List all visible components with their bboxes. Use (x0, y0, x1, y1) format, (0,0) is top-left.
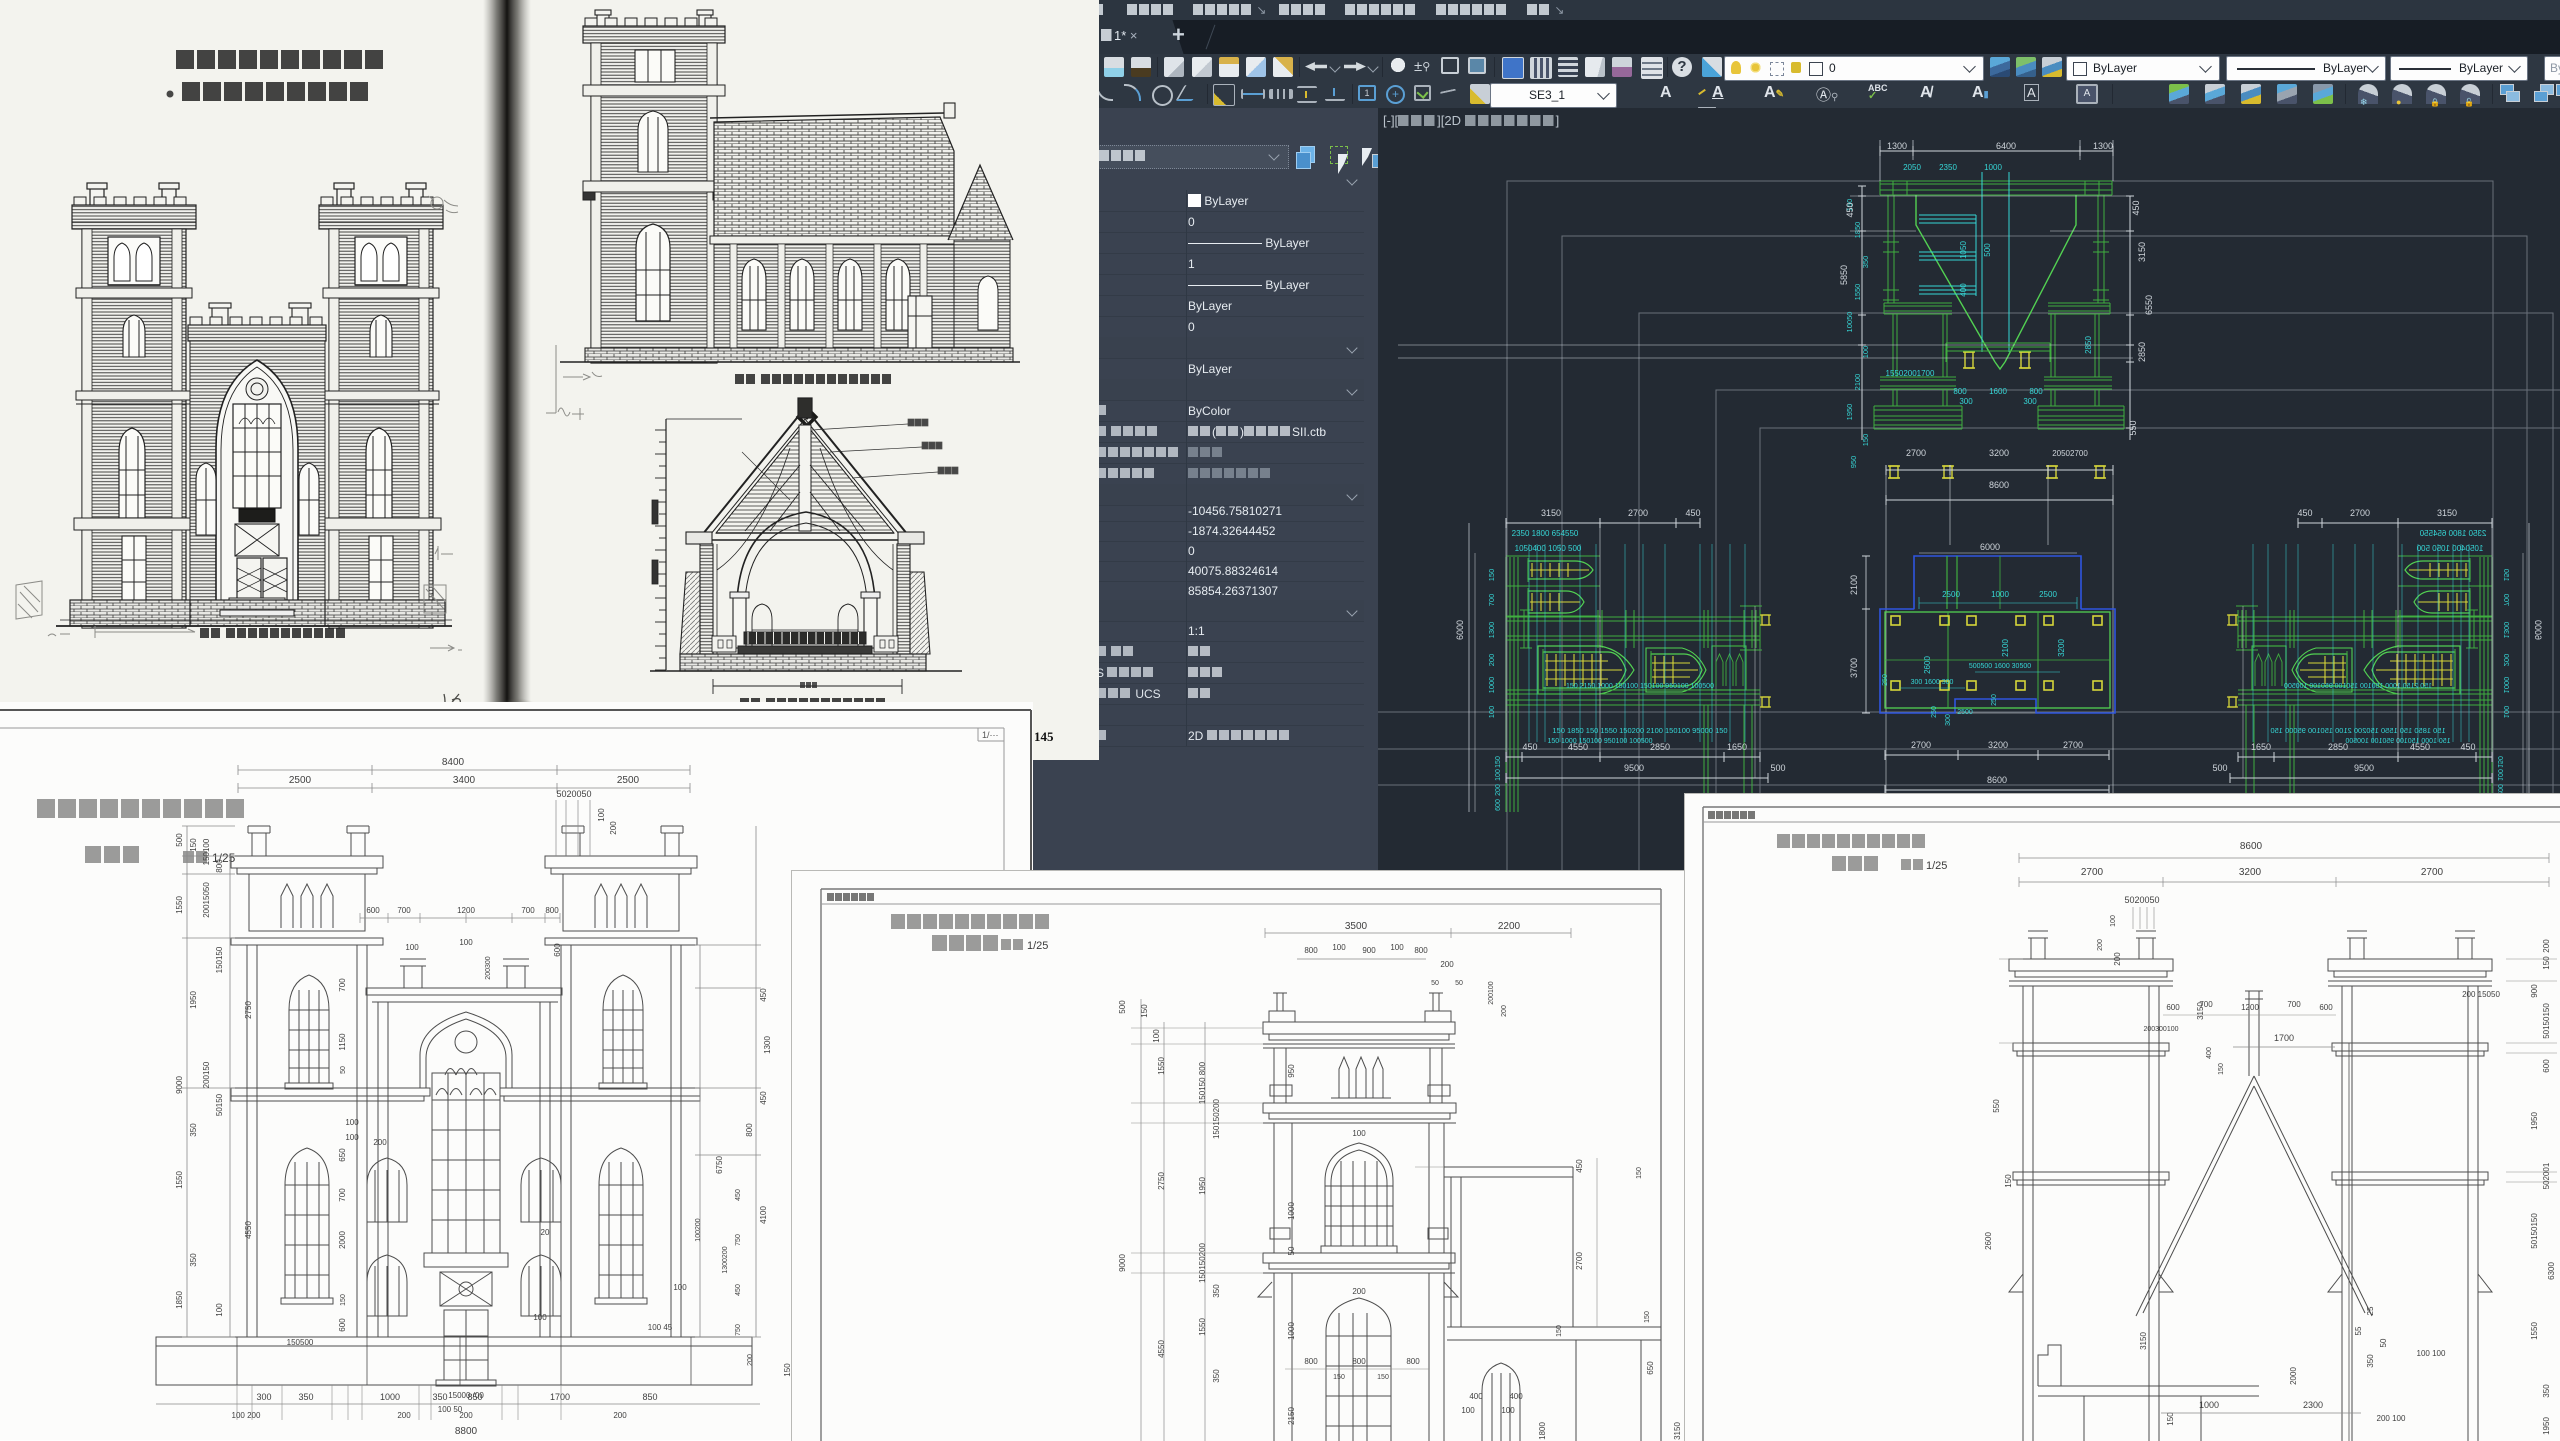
svg-text:150: 150 (2542, 956, 2551, 970)
svg-text:1850: 1850 (175, 1291, 184, 1309)
svg-text:3150: 3150 (1673, 1422, 1682, 1440)
svg-text:200100: 200100 (1488, 981, 1495, 1004)
svg-text:2000: 2000 (2289, 1367, 2298, 1385)
svg-text:400: 400 (2206, 1047, 2213, 1059)
svg-text:150 1850 150 1550 150200: 150 1850 150 1550 150200 2100 150100 950… (1552, 726, 1727, 735)
svg-text:200: 200 (2502, 654, 2511, 667)
svg-text:200300: 200300 (485, 956, 492, 979)
svg-text:2350 1800 654550: 2350 1800 654550 (1512, 529, 1579, 538)
svg-text:550: 550 (2128, 420, 2138, 435)
svg-text:150: 150 (1636, 1167, 1643, 1179)
svg-text:9500: 9500 (1624, 763, 1644, 773)
svg-text:150: 150 (2496, 756, 2503, 768)
svg-text:8400: 8400 (442, 757, 465, 768)
svg-text:3150: 3150 (2139, 1332, 2148, 1350)
svg-text:600: 600 (338, 1318, 347, 1332)
svg-text:1000: 1000 (1487, 677, 1496, 694)
svg-text:100: 100 (1152, 1029, 1161, 1043)
svg-text:100: 100 (1332, 943, 1346, 952)
svg-text:150: 150 (1377, 1374, 1389, 1381)
svg-text:700: 700 (397, 906, 411, 915)
svg-text:50: 50 (1455, 980, 1463, 987)
svg-text:450: 450 (1845, 202, 1855, 217)
svg-text:502001: 502001 (2542, 1162, 2551, 1189)
svg-text:800: 800 (215, 859, 224, 873)
svg-text:2700: 2700 (2081, 867, 2104, 878)
svg-text:2700: 2700 (1628, 508, 1648, 518)
svg-text:200: 200 (1495, 784, 1502, 796)
svg-text:2100: 2100 (1849, 575, 1859, 595)
svg-text:150: 150 (189, 838, 198, 852)
svg-text:1300: 1300 (1887, 141, 1907, 151)
svg-text:850: 850 (467, 1392, 482, 1402)
svg-text:200: 200 (459, 1411, 473, 1420)
svg-text:1200: 1200 (2241, 1003, 2259, 1012)
svg-text:300: 300 (2023, 397, 2037, 406)
svg-text:1550: 1550 (1157, 1057, 1166, 1075)
svg-text:450: 450 (735, 1189, 742, 1201)
svg-text:5020050: 5020050 (2124, 895, 2159, 905)
svg-text:800: 800 (1414, 946, 1428, 955)
svg-text:20502700: 20502700 (2052, 449, 2088, 458)
svg-text:1550: 1550 (175, 1171, 184, 1189)
svg-text:2850: 2850 (2137, 342, 2147, 362)
svg-text:800: 800 (1304, 946, 1318, 955)
svg-text:8800: 8800 (455, 1426, 478, 1437)
svg-text:6550: 6550 (2144, 295, 2154, 315)
svg-text:150: 150 (2218, 1063, 2225, 1075)
svg-text:1600: 1600 (1989, 387, 2007, 396)
svg-text:800: 800 (1352, 1357, 1366, 1366)
svg-text:700: 700 (2502, 594, 2511, 607)
svg-text:650: 650 (338, 1148, 347, 1162)
svg-text:55: 55 (2354, 1326, 2363, 1335)
svg-text:2300: 2300 (2303, 1400, 2323, 1410)
svg-text:150: 150 (1487, 569, 1496, 582)
svg-text:1700: 1700 (2274, 1033, 2294, 1043)
svg-text:150: 150 (1140, 1004, 1149, 1018)
svg-text:200: 200 (1487, 654, 1496, 667)
svg-text:2500: 2500 (289, 775, 312, 786)
svg-text:2500: 2500 (617, 775, 640, 786)
svg-text:3200: 3200 (2057, 639, 2066, 657)
svg-text:2700: 2700 (1911, 740, 1931, 750)
svg-text:200: 200 (609, 821, 618, 835)
svg-text:200: 200 (613, 1411, 627, 1420)
svg-text:1300: 1300 (2093, 141, 2113, 151)
svg-text:4550: 4550 (244, 1221, 253, 1239)
svg-text:2500: 2500 (1957, 709, 1973, 716)
svg-text:500: 500 (175, 833, 184, 847)
svg-text:400: 400 (1959, 283, 1968, 297)
svg-text:1300: 1300 (1487, 622, 1496, 639)
svg-text:600: 600 (366, 906, 380, 915)
svg-text:800: 800 (2029, 387, 2043, 396)
svg-text:2050: 2050 (1903, 163, 1921, 172)
svg-text:100: 100 (1352, 1129, 1366, 1138)
svg-text:650: 650 (1646, 1361, 1655, 1375)
svg-text:3150: 3150 (2196, 1002, 2205, 1020)
svg-text:50: 50 (1431, 980, 1439, 987)
svg-text:1950: 1950 (189, 991, 198, 1009)
svg-text:9500: 9500 (2354, 763, 2374, 773)
svg-text:700: 700 (338, 1188, 347, 1202)
svg-text:3200: 3200 (2239, 867, 2262, 878)
svg-text:600: 600 (2319, 1003, 2333, 1012)
svg-text:1050: 1050 (1959, 241, 1968, 259)
svg-text:1000: 1000 (2502, 677, 2511, 694)
svg-text:1800: 1800 (1538, 1422, 1547, 1440)
svg-text:2600: 2600 (1923, 656, 1932, 674)
svg-text:200 100: 200 100 (2377, 1414, 2406, 1423)
svg-text:350: 350 (2542, 1384, 2551, 1398)
svg-text:1950: 1950 (2542, 1417, 2551, 1435)
svg-text:800: 800 (545, 906, 559, 915)
svg-text:3200: 3200 (1988, 740, 2008, 750)
svg-text:600: 600 (2166, 1003, 2180, 1012)
svg-text:6400: 6400 (1996, 141, 2016, 151)
svg-text:150: 150 (2502, 569, 2511, 582)
svg-text:4550: 4550 (1568, 742, 1588, 752)
svg-text:200: 200 (2097, 939, 2104, 951)
svg-text:6000: 6000 (2533, 620, 2543, 640)
svg-text:150: 150 (1644, 1311, 1651, 1323)
svg-text:350: 350 (1212, 1284, 1221, 1298)
svg-text:1050400 1050 500: 1050400 1050 500 (1515, 544, 1582, 553)
svg-text:1550: 1550 (1198, 1318, 1207, 1336)
svg-text:6750: 6750 (715, 1156, 724, 1174)
svg-text:2600: 2600 (1984, 1232, 1993, 1250)
svg-text:1/25: 1/25 (1926, 860, 1947, 872)
svg-text:200: 200 (2113, 952, 2122, 966)
svg-text:450: 450 (2297, 508, 2312, 518)
svg-text:200: 200 (1352, 1287, 1366, 1296)
svg-text:800: 800 (1304, 1357, 1318, 1366)
svg-text:100: 100 (1487, 706, 1496, 719)
svg-text:150150: 150150 (215, 946, 224, 973)
svg-text:100: 100 (459, 938, 473, 947)
svg-text:150150200: 150150200 (1212, 1098, 1221, 1139)
svg-text:450: 450 (1522, 742, 1537, 752)
svg-text:150: 150 (1333, 1374, 1345, 1381)
svg-text:3150: 3150 (2437, 508, 2457, 518)
svg-text:250: 250 (1991, 694, 1998, 706)
svg-text:450: 450 (2460, 742, 2475, 752)
svg-text:100: 100 (405, 943, 419, 952)
svg-text:1650: 1650 (1727, 742, 1747, 752)
svg-text:145: 145 (1034, 729, 1054, 744)
svg-text:350: 350 (1212, 1369, 1221, 1383)
svg-text:3500: 3500 (1345, 921, 1368, 932)
svg-text:1950: 1950 (1845, 404, 1854, 421)
svg-text:2700: 2700 (1575, 1252, 1584, 1270)
svg-text:8600: 8600 (1987, 775, 2007, 785)
svg-text:1650: 1650 (2251, 742, 2271, 752)
svg-text:50: 50 (1287, 1246, 1296, 1255)
svg-text:1950: 1950 (2530, 1112, 2539, 1130)
svg-text:2500: 2500 (2039, 590, 2057, 599)
svg-text:300 1600 300: 300 1600 300 (1911, 679, 1954, 686)
svg-text:100: 100 (1501, 1406, 1515, 1415)
svg-text:2100: 2100 (2001, 639, 2010, 657)
svg-text:750: 750 (735, 1324, 742, 1336)
svg-text:200: 200 (2542, 939, 2551, 953)
svg-text:2200: 2200 (1498, 921, 1521, 932)
svg-text:700: 700 (338, 978, 347, 992)
svg-text:350: 350 (432, 1392, 447, 1402)
svg-text:150100: 150100 (202, 838, 211, 865)
svg-text:150 2150 1000 150100 1501: 150 2150 1000 150100 150100 950100 10050… (1566, 683, 1714, 690)
svg-text:150150200: 150150200 (1198, 1242, 1207, 1283)
svg-text:3150: 3150 (2137, 242, 2147, 262)
svg-text:400: 400 (1469, 1392, 1483, 1401)
svg-text:8600: 8600 (2240, 841, 2263, 852)
svg-text:350: 350 (2366, 1354, 2375, 1368)
svg-text:100: 100 (533, 1313, 547, 1322)
svg-text:25: 25 (2366, 1306, 2375, 1315)
svg-text:200: 200 (1501, 1005, 1508, 1017)
svg-text:100: 100 (2496, 769, 2503, 781)
svg-text:100: 100 (2110, 915, 2117, 927)
svg-text:200150: 200150 (202, 1061, 211, 1088)
svg-text:6000: 6000 (1980, 542, 2000, 552)
svg-text:450: 450 (759, 988, 768, 1002)
svg-text:100: 100 (1390, 943, 1404, 952)
svg-text:1300: 1300 (2502, 622, 2511, 639)
svg-text:50: 50 (2379, 1338, 2388, 1347)
svg-text:450: 450 (2131, 200, 2141, 215)
svg-text:100 200: 100 200 (232, 1411, 261, 1420)
svg-text:4100: 4100 (759, 1206, 768, 1224)
svg-text:400: 400 (1509, 1392, 1523, 1401)
svg-text:500: 500 (1770, 763, 1785, 773)
svg-text:200: 200 (373, 1138, 387, 1147)
svg-text:4550: 4550 (1157, 1340, 1166, 1358)
svg-text:450: 450 (1575, 1159, 1584, 1173)
svg-text:850: 850 (642, 1392, 657, 1402)
svg-text:700: 700 (1487, 594, 1496, 607)
svg-text:600: 600 (553, 943, 562, 957)
svg-text:1550: 1550 (175, 896, 184, 914)
svg-text:20015050: 20015050 (202, 882, 211, 918)
svg-text:150: 150 (1556, 1325, 1563, 1337)
svg-text:200300100: 200300100 (2143, 1026, 2178, 1033)
svg-text:9000: 9000 (175, 1076, 184, 1094)
svg-text:6000: 6000 (1455, 620, 1465, 640)
svg-text:3150: 3150 (1541, 508, 1561, 518)
svg-text:150: 150 (340, 1294, 347, 1306)
svg-text:50150150: 50150150 (2530, 1213, 2539, 1249)
svg-text:100: 100 (1461, 1406, 1475, 1415)
svg-text:450: 450 (735, 1284, 742, 1296)
svg-text:100: 100 (597, 808, 606, 822)
svg-text:20: 20 (541, 1228, 550, 1237)
svg-text:1300: 1300 (763, 1036, 772, 1054)
svg-text:2350 1800 654550: 2350 1800 654550 (2419, 529, 2486, 538)
svg-text:300: 300 (256, 1392, 271, 1402)
svg-text:8600: 8600 (1989, 480, 2009, 490)
svg-text:2100: 2100 (1853, 374, 1862, 391)
svg-text:150 1850 150 1550 150200: 150 1850 150 1550 150200 2100 150100 950… (2270, 726, 2445, 735)
svg-text:150: 150 (2004, 1174, 2013, 1188)
svg-text:350: 350 (189, 1253, 198, 1267)
svg-text:3700: 3700 (1849, 658, 1859, 678)
svg-text:1000: 1000 (1287, 1322, 1296, 1340)
svg-text:2700: 2700 (2350, 508, 2370, 518)
svg-text:2850: 2850 (1650, 742, 1670, 752)
svg-text:2150: 2150 (1287, 1407, 1296, 1425)
svg-text:100: 100 (2502, 706, 2511, 719)
svg-text:50150: 50150 (215, 1093, 224, 1116)
svg-text:2700: 2700 (2063, 740, 2083, 750)
svg-text:4550: 4550 (2410, 742, 2430, 752)
svg-text:1150: 1150 (338, 1033, 347, 1051)
svg-text:550: 550 (1992, 1099, 2001, 1113)
svg-text:600: 600 (1495, 799, 1502, 811)
svg-text:500: 500 (1983, 243, 1992, 257)
svg-text:100 45: 100 45 (648, 1323, 673, 1332)
svg-text:150: 150 (2166, 1412, 2175, 1426)
svg-text:50: 50 (340, 1066, 347, 1074)
svg-text:1000: 1000 (1984, 163, 2002, 172)
svg-text:1/25: 1/25 (1027, 940, 1048, 952)
svg-text:150500: 150500 (287, 1338, 314, 1347)
svg-text:1950: 1950 (1198, 1177, 1207, 1195)
svg-text:50150150: 50150150 (2542, 1003, 2551, 1039)
svg-text:150: 150 (1495, 756, 1502, 768)
svg-text:2000: 2000 (338, 1231, 347, 1249)
svg-text:100: 100 (345, 1118, 359, 1127)
svg-text:500: 500 (1118, 1000, 1127, 1014)
svg-text:200: 200 (1440, 960, 1454, 969)
svg-text:450: 450 (759, 1091, 768, 1105)
svg-text:1200: 1200 (457, 906, 475, 915)
svg-text:500500 1600 30500: 500500 1600 30500 (1969, 663, 2031, 670)
svg-text:700: 700 (521, 906, 535, 915)
svg-text:5850: 5850 (1839, 265, 1849, 285)
svg-text:2750: 2750 (1157, 1172, 1166, 1190)
svg-text:100: 100 (673, 1283, 687, 1292)
svg-text:250: 250 (1931, 706, 1938, 718)
svg-text:100 100: 100 100 (2417, 1349, 2446, 1358)
svg-text:3200: 3200 (1989, 448, 2009, 458)
svg-text:500: 500 (2212, 763, 2227, 773)
svg-text:350: 350 (189, 1123, 198, 1137)
svg-text:700: 700 (2287, 1000, 2301, 1009)
svg-text:2700: 2700 (2421, 867, 2444, 878)
svg-text:9000: 9000 (1118, 1254, 1127, 1272)
svg-text:1000: 1000 (2199, 1400, 2219, 1410)
svg-text:1550: 1550 (1853, 284, 1862, 301)
svg-text:1050400 1050 500: 1050400 1050 500 (2416, 544, 2483, 553)
svg-text:800: 800 (1406, 1357, 1420, 1366)
svg-text:6300: 6300 (2547, 1262, 2556, 1280)
svg-text:200: 200 (397, 1411, 411, 1420)
svg-text:300: 300 (1945, 714, 1952, 726)
svg-text:150150 800: 150150 800 (1198, 1061, 1207, 1104)
svg-text:1550: 1550 (2530, 1322, 2539, 1340)
svg-text:450: 450 (1685, 508, 1700, 518)
svg-text:800: 800 (1953, 387, 1967, 396)
svg-text:900: 900 (2530, 984, 2539, 998)
svg-text:1/⋯: 1/⋯ (982, 730, 999, 740)
svg-text:300: 300 (1959, 397, 1973, 406)
svg-text:15502001700: 15502001700 (1886, 369, 1935, 378)
svg-text:2750: 2750 (244, 1001, 253, 1019)
svg-text:800: 800 (745, 1123, 754, 1137)
svg-text:2700: 2700 (1906, 448, 1926, 458)
svg-text:10050: 10050 (1845, 312, 1854, 333)
svg-text:900: 900 (1362, 946, 1376, 955)
svg-text:100: 100 (215, 1303, 224, 1317)
svg-text:2500: 2500 (1942, 590, 1960, 599)
svg-text:600: 600 (2542, 1059, 2551, 1073)
svg-text:2850: 2850 (2328, 742, 2348, 752)
svg-text:100200: 100200 (695, 1218, 702, 1241)
svg-text:200 15050: 200 15050 (2462, 990, 2500, 999)
svg-text:950: 950 (1849, 456, 1858, 469)
svg-text:950: 950 (1287, 1064, 1296, 1078)
svg-text:100: 100 (345, 1133, 359, 1142)
svg-text:1000: 1000 (1991, 590, 2009, 599)
svg-text:200: 200 (747, 1354, 754, 1366)
svg-text:250: 250 (1882, 674, 1889, 686)
svg-text:100: 100 (1495, 769, 1502, 781)
svg-text:5020050: 5020050 (556, 789, 591, 799)
svg-text:3400: 3400 (453, 775, 476, 786)
svg-text:750: 750 (735, 1234, 742, 1246)
svg-text:1000: 1000 (380, 1392, 400, 1402)
svg-text:2350: 2350 (1939, 163, 1957, 172)
svg-text:150 2150 1000 150100 1501: 150 2150 1000 150100 150100 950100 10050… (2284, 683, 2432, 690)
svg-text:1850: 1850 (1853, 222, 1862, 239)
svg-text:1300200: 1300200 (722, 1246, 729, 1273)
svg-text:1000: 1000 (1287, 1202, 1296, 1220)
svg-text:1700: 1700 (550, 1392, 570, 1402)
svg-text:350: 350 (298, 1392, 313, 1402)
